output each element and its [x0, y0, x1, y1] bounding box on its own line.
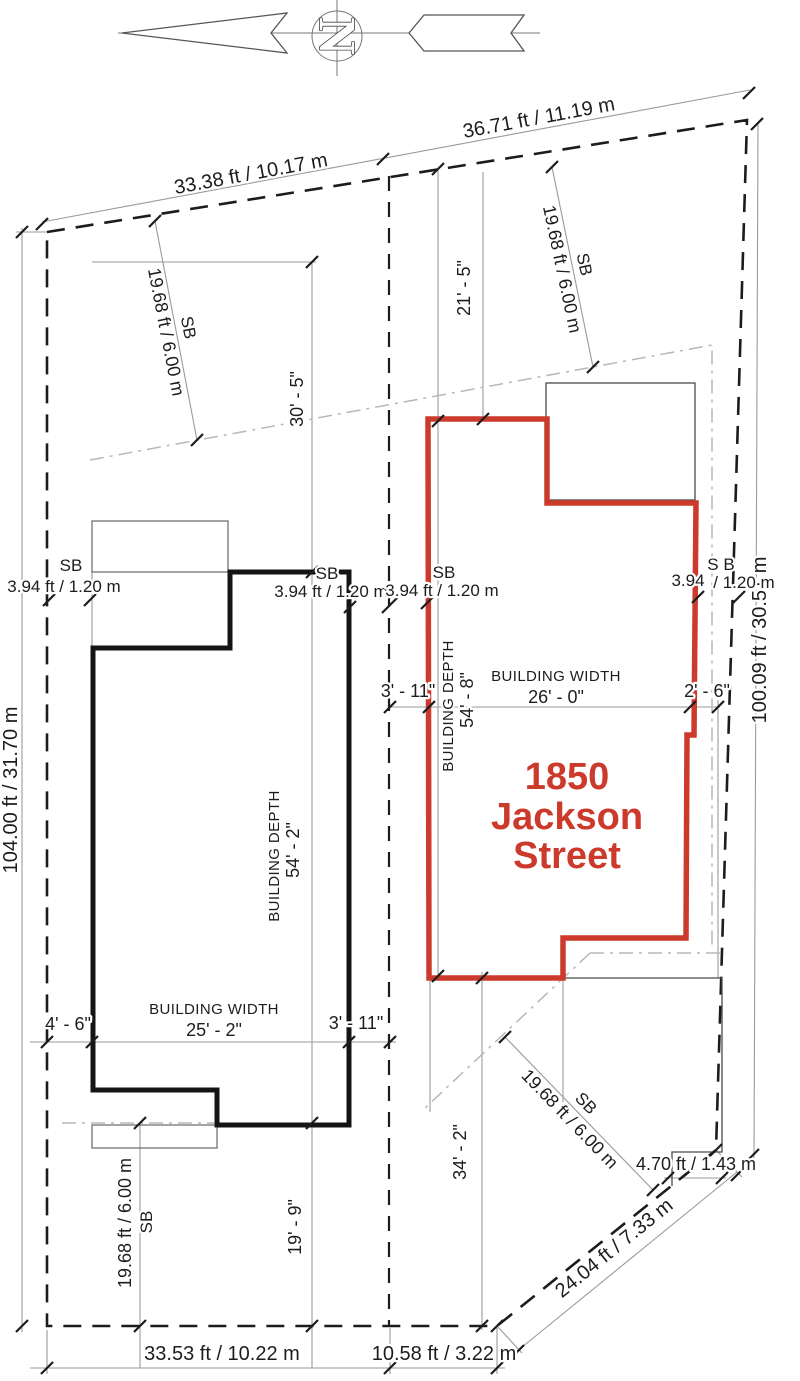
left-building-depth-label: BUILDING DEPTH: [266, 790, 283, 921]
dim-corner-offset: 4.70 ft / 1.43 m: [636, 1154, 756, 1174]
sb-side-left-label: SB: [60, 556, 83, 575]
dim-lot-left: 104.00 ft / 31.70 m: [0, 707, 22, 874]
site-plan-page: N 33.38 ft / 10.17 m 36.71 ft / 11.19 m …: [0, 0, 800, 1381]
sb-side-right-label: S B: [707, 555, 734, 574]
address-line2: Jackson: [491, 796, 643, 838]
sb-side-left-value: 3.94 ft / 1.20 m: [7, 577, 120, 596]
north-letter: N: [308, 17, 365, 55]
left-building-width-value: 25' - 2": [186, 1020, 242, 1040]
left-building-depth-value: 54' - 2": [283, 822, 303, 878]
right-building-depth-value: 54' - 8": [457, 672, 477, 728]
dim-left-side-offset-right: 3' - 11": [329, 1013, 384, 1033]
dim-left-side-offset-left: 4' - 6": [45, 1014, 91, 1034]
sb-side-mid-right-label: SB: [433, 563, 456, 582]
sb-front-right-label: SB: [573, 251, 596, 277]
sb-side-right-value-a: 3.94: [671, 571, 704, 590]
address-line3: Street: [513, 835, 621, 877]
dim-right-side-offset-right: 2' - 6": [684, 681, 730, 701]
site-plan-drawing: N 33.38 ft / 10.17 m 36.71 ft / 11.19 m …: [0, 0, 800, 1381]
right-building-width-value: 26' - 0": [528, 687, 584, 707]
sb-front-left: SB 19.68 ft / 6.00 m: [144, 262, 210, 398]
dim-right-front-offset: 21' - 5": [454, 260, 474, 316]
dim-lot-bottom-mid: 10.58 ft / 3.22 m: [372, 1343, 517, 1365]
sb-side-right-value-b: / 1.20 m: [713, 573, 774, 592]
sb-side-mid-left-label: SB: [316, 564, 339, 583]
dim-lot-bottom-left: 33.53 ft / 10.22 m: [144, 1343, 300, 1365]
sb-side-mid-left-value: 3.94 ft / 1.20 m: [274, 582, 387, 601]
address-label: 1850 Jackson Street: [491, 756, 643, 877]
left-building-porch-outline: [92, 521, 228, 572]
right-building-width-label: BUILDING WIDTH: [491, 668, 621, 685]
sb-rear-left-value: 19.68 ft / 6.00 m: [115, 1158, 135, 1288]
north-arrow: N: [118, 0, 540, 76]
sb-rear-right: SB 19.68 ft / 6.00 m: [517, 1050, 638, 1173]
sb-rear-right-value: 19.68 ft / 6.00 m: [517, 1065, 622, 1172]
dim-left-rear-offset: 19' - 9": [285, 1199, 305, 1255]
garage-outline: [546, 383, 695, 500]
address-line1: 1850: [525, 756, 610, 798]
dim-right-rear-offset: 34' - 2": [450, 1124, 470, 1180]
sb-rear-left-label: SB: [137, 1211, 156, 1234]
dim-lot-top-right: 36.71 ft / 11.19 m: [461, 93, 617, 143]
dim-lot-corner: 24.04 ft / 7.33 m: [551, 1194, 677, 1302]
left-building-width-label: BUILDING WIDTH: [149, 1001, 279, 1018]
sb-front-left-label: SB: [177, 315, 200, 341]
sb-side-mid-right-value: 3.94 ft / 1.20 m: [385, 581, 498, 600]
right-building-depth-label: BUILDING DEPTH: [440, 640, 457, 771]
north-arrow-head: [122, 13, 287, 53]
dim-right-side-offset-left: 3' - 11": [381, 681, 436, 701]
dim-left-front-offset: 30' - 5": [287, 371, 307, 427]
north-arrow-fletch: [409, 15, 524, 51]
left-building-rear-step-outline: [92, 1125, 217, 1148]
